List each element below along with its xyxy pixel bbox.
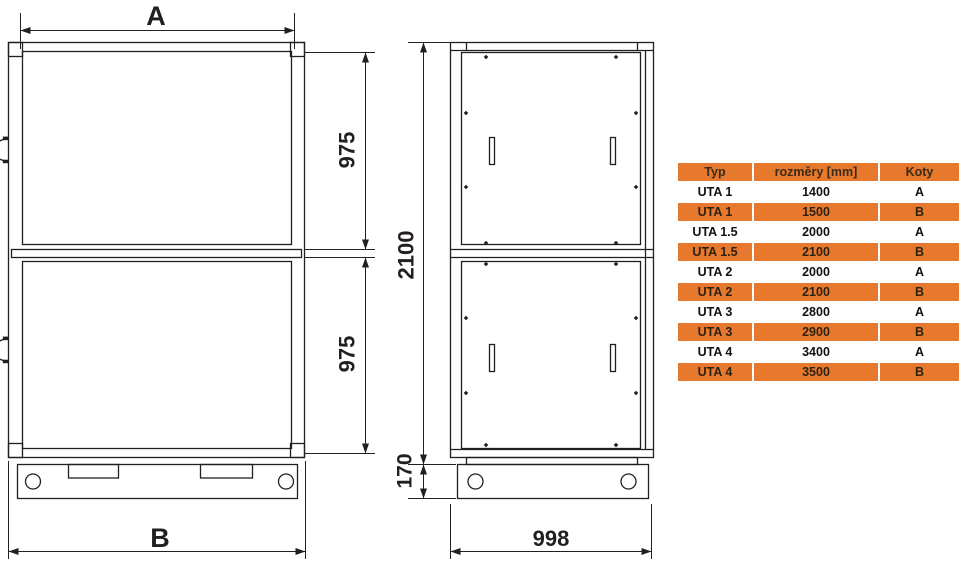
cell-koty: B: [880, 363, 959, 381]
cell-koty: B: [880, 203, 959, 221]
screw-dot: [634, 316, 639, 321]
cell-koty: A: [880, 183, 959, 201]
side-view: [451, 43, 654, 499]
door-handle-slot: [490, 345, 495, 372]
table-row: UTA 1.5 2000 A: [678, 223, 959, 241]
table-row: UTA 1 1400 A: [678, 183, 959, 201]
cell-rozmery: 1500: [754, 203, 878, 221]
cell-rozmery: 2800: [754, 303, 878, 321]
door-handle-slot: [490, 138, 495, 165]
cell-rozmery: 2000: [754, 263, 878, 281]
table-row: UTA 1.5 2100 B: [678, 243, 959, 261]
side-base-frame: [458, 465, 649, 499]
cell-typ: UTA 1.5: [678, 223, 752, 241]
dim-label-975-lower: 975: [335, 336, 360, 373]
col-header-rozmery: rozměry [mm]: [754, 163, 878, 181]
base-hole: [26, 474, 41, 489]
cell-rozmery: 2000: [754, 223, 878, 241]
cell-typ: UTA 3: [678, 303, 752, 321]
table-row: UTA 4 3500 B: [678, 363, 959, 381]
cell-rozmery: 3500: [754, 363, 878, 381]
dim-label-B: B: [150, 523, 170, 553]
table-row: UTA 2 2000 A: [678, 263, 959, 281]
cell-typ: UTA 2: [678, 263, 752, 281]
dim-label-2100: 2100: [394, 231, 419, 280]
cell-typ: UTA 1: [678, 203, 752, 221]
screw-dot: [464, 185, 469, 190]
base-slot: [201, 465, 253, 479]
table-row: UTA 3 2900 B: [678, 323, 959, 341]
dim-label-975-upper: 975: [335, 132, 360, 169]
cell-typ: UTA 1.5: [678, 243, 752, 261]
cell-typ: UTA 3: [678, 323, 752, 341]
cell-typ: UTA 1: [678, 183, 752, 201]
air-handling-unit-drawing: A B 975 975: [0, 0, 965, 566]
cell-rozmery: 2900: [754, 323, 878, 341]
dim-label-998: 998: [533, 526, 570, 551]
cell-rozmery: 3400: [754, 343, 878, 361]
screw-dot: [464, 391, 469, 396]
cell-rozmery: 2100: [754, 243, 878, 261]
cell-typ: UTA 2: [678, 283, 752, 301]
cell-koty: A: [880, 263, 959, 281]
base-slot: [69, 465, 119, 479]
screw-dot: [634, 391, 639, 396]
side-base-hole: [621, 474, 636, 489]
cell-koty: A: [880, 223, 959, 241]
col-header-typ: Typ: [678, 163, 752, 181]
table-row: UTA 3 2800 A: [678, 303, 959, 321]
side-base-hole: [468, 474, 483, 489]
cabinet-divider-band: [12, 250, 302, 258]
door-hinge-lower: [0, 337, 8, 364]
side-dimensions: [408, 43, 652, 560]
corner-cap: [291, 43, 305, 57]
screw-dot: [464, 316, 469, 321]
base-frame: [18, 465, 298, 499]
cabinet-lower-panel: [23, 262, 292, 449]
screw-dot: [484, 55, 489, 60]
side-upper-door: [462, 53, 641, 245]
cabinet-upper-panel: [23, 52, 292, 245]
cell-koty: B: [880, 243, 959, 261]
door-hinge-upper: [0, 137, 8, 164]
screw-dot: [464, 111, 469, 116]
door-handle-slot: [611, 345, 616, 372]
base-hole: [279, 474, 294, 489]
dim-label-A: A: [146, 1, 166, 31]
corner-cap: [9, 444, 23, 458]
table-row: UTA 2 2100 B: [678, 283, 959, 301]
cell-koty: B: [880, 323, 959, 341]
door-handle-slot: [611, 138, 616, 165]
unit-views-svg: A B 975 975: [0, 0, 680, 566]
table-row: UTA 4 3400 A: [678, 343, 959, 361]
screw-dot: [634, 111, 639, 116]
dim-label-170: 170: [394, 453, 417, 488]
cell-typ: UTA 4: [678, 363, 752, 381]
screw-dot: [484, 443, 489, 448]
screw-dot: [484, 262, 489, 267]
screw-dot: [614, 443, 619, 448]
dimensions-table: Typ rozměry [mm] Koty UTA 1 1400 A UTA 1…: [676, 161, 961, 383]
front-dimensions: [9, 13, 376, 559]
cell-typ: UTA 4: [678, 343, 752, 361]
cell-rozmery: 2100: [754, 283, 878, 301]
front-view: [0, 43, 304, 499]
side-bottom-step: [467, 458, 638, 465]
screw-dot: [634, 185, 639, 190]
side-lower-door: [462, 262, 641, 449]
screw-dot: [614, 55, 619, 60]
col-header-koty: Koty: [880, 163, 959, 181]
cell-rozmery: 1400: [754, 183, 878, 201]
table-header-row: Typ rozměry [mm] Koty: [678, 163, 959, 181]
cell-koty: A: [880, 343, 959, 361]
cell-koty: A: [880, 303, 959, 321]
corner-cap: [291, 444, 305, 458]
cell-koty: B: [880, 283, 959, 301]
table-row: UTA 1 1500 B: [678, 203, 959, 221]
screw-dot: [614, 262, 619, 267]
